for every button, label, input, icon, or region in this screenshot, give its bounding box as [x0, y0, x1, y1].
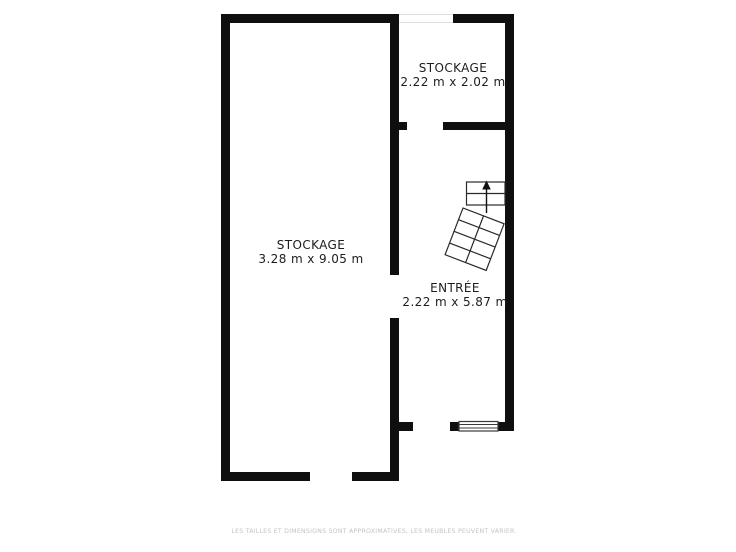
room-label-entrance: ENTRÉE 2.22 m x 5.87 m [402, 281, 507, 310]
disclaimer-text: LES TAILLES ET DIMENSIONS SONT APPROXIMA… [231, 528, 516, 535]
room-label-storage-large: STOCKAGE 3.28 m x 9.05 m [258, 238, 363, 267]
room-label-storage-small: STOCKAGE 2.22 m x 2.02 m [400, 61, 505, 90]
window-icon [459, 422, 498, 432]
room-dimensions: 2.22 m x 5.87 m [402, 295, 507, 310]
room-dimensions: 2.22 m x 2.02 m [400, 75, 505, 90]
room-name: STOCKAGE [258, 238, 363, 252]
room-name: ENTRÉE [402, 281, 507, 295]
floor-plan: STOCKAGE 3.28 m x 9.05 m STOCKAGE 2.22 m… [0, 0, 736, 552]
staircase-icon [0, 0, 736, 552]
room-name: STOCKAGE [400, 61, 505, 75]
room-dimensions: 3.28 m x 9.05 m [258, 252, 363, 267]
